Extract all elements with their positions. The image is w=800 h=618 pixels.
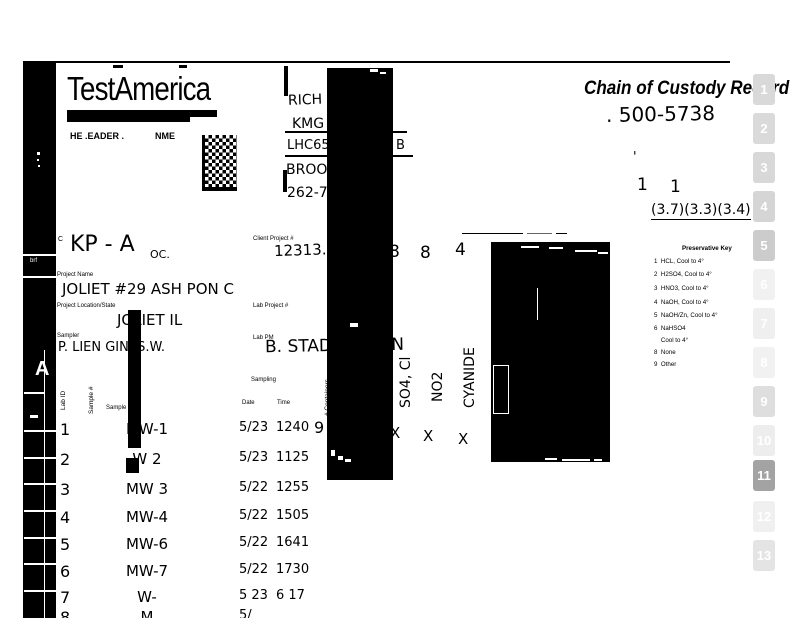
lab-project-label: Lab Project #: [253, 302, 288, 309]
sample-time: 1730: [276, 562, 316, 577]
analysis-column-anions: SO4, Cl: [398, 357, 414, 408]
side-tab-3: 3: [753, 152, 775, 183]
time-column-header: Time: [277, 399, 290, 406]
band-divider: [24, 483, 56, 485]
client-value-2: OC.: [150, 248, 170, 261]
scan-artifact: [594, 459, 602, 461]
scan-artifact: [30, 415, 38, 418]
sample-date: 5/22: [239, 562, 273, 577]
lab-id-column-header: Lab ID: [60, 391, 67, 410]
band-divider: [24, 457, 56, 459]
preservative-key-item: 4 NaOH, Cool to 4°: [654, 299, 709, 306]
row-number: 1: [60, 420, 82, 439]
scan-artifact: [562, 459, 590, 461]
preservative-key-item: 5 NaOH/Zn, Cool to 4°: [654, 312, 718, 319]
sample-time: 1255: [276, 480, 316, 495]
scan-artifact: [545, 458, 557, 460]
side-tab-12: 12: [753, 501, 775, 532]
side-tab-7: 7: [753, 308, 775, 339]
row1-container-count: 9: [314, 418, 324, 437]
client-field-prefix: C: [58, 236, 63, 243]
scan-artifact: [350, 323, 358, 327]
analysis-x-mark: X: [423, 427, 433, 445]
tick-mark: ': [633, 150, 637, 165]
form-rule: [462, 233, 523, 234]
sample-date: 5/22: [239, 480, 273, 495]
scan-artifact: [575, 250, 597, 252]
scan-artifact: [345, 459, 351, 462]
band-divider: [24, 563, 56, 565]
analysis-column-no2: NO2: [430, 372, 446, 402]
sample-description: W 2: [108, 450, 186, 468]
band-stamp-label: brf: [30, 258, 37, 264]
band-divider: [23, 276, 56, 278]
sample-date: 5/23: [239, 420, 273, 435]
preservative-key-item: Cool to 4°: [654, 337, 688, 344]
preservative-key-item: 8 None: [654, 349, 676, 356]
sample-date: 5 23: [239, 588, 273, 603]
preservative-key-item: 3 HNO3, Cool to 4°: [654, 285, 709, 292]
client-value: KP - A: [70, 232, 135, 257]
scan-artifact: [370, 69, 378, 72]
datamatrix-barcode: [202, 135, 237, 191]
scan-artifact: [37, 152, 40, 155]
side-tab-2: 2: [753, 113, 775, 144]
sample-date: 5/22: [239, 535, 273, 550]
row-number: 8: [60, 608, 82, 618]
preservative-key-item: 2 H2SO4, Cool to 4°: [654, 271, 712, 278]
redaction-mark: [126, 458, 139, 473]
scan-artifact: [331, 450, 335, 456]
scan-artifact: [284, 66, 288, 96]
scan-artifact: [521, 246, 539, 248]
cooler-count-left: 1: [637, 175, 648, 195]
coc-number: . 500-5738: [606, 101, 715, 127]
sampling-header: Sampling: [251, 376, 276, 383]
scan-artifact: [380, 72, 386, 74]
scanned-chain-of-custody-document: brf A TestAmerica HE .EADER . NME RICH B…: [0, 0, 800, 618]
redaction-bar: [128, 310, 141, 448]
preservative-key-item: 1 HCL, Cool to 4°: [654, 258, 704, 265]
scan-artifact: [38, 165, 40, 167]
date-column-header: Date: [242, 399, 255, 406]
row-number: 3: [60, 480, 82, 499]
sample-description: MW 3: [108, 480, 186, 498]
project-location-value: JOLIET IL: [117, 311, 182, 329]
scan-artifact: [537, 288, 538, 320]
side-tab-8: 8: [753, 347, 775, 378]
row-number: 6: [60, 562, 82, 581]
sampler-label: Sampler: [57, 332, 79, 339]
sample-description: MW-1: [108, 420, 186, 438]
side-tab-11: 11: [753, 460, 775, 491]
preservative-key-title: Preservative Key: [682, 245, 732, 252]
top-rule: [23, 61, 730, 63]
band-divider: [24, 392, 44, 394]
side-tab-9: 9: [753, 386, 775, 417]
row-number: 5: [60, 535, 82, 554]
scan-artifact: [338, 456, 343, 460]
project-name-value: JOLIET #29 ASH PON C: [62, 280, 234, 298]
sample-description: M: [108, 608, 186, 618]
testamerica-logo: TestAmerica: [67, 70, 210, 108]
sample-description: MW-7: [108, 562, 186, 580]
row-number: 4: [60, 508, 82, 527]
cooler-temperatures: (3.7)(3.3)(3.4): [651, 202, 751, 220]
logo-tagline-2: NME: [155, 131, 175, 141]
sample-date: 5/: [239, 608, 273, 618]
cooler-count-right: 1: [670, 177, 681, 197]
logo-tagline: HE .EADER .: [70, 131, 124, 141]
band-divider: [24, 537, 56, 539]
sample-time: 1641: [276, 535, 316, 550]
redaction-window-outline: [493, 365, 509, 414]
side-tab-5: 5: [753, 230, 775, 261]
sample-number-column-header: Sample #: [88, 387, 95, 414]
row-number: 2: [60, 450, 82, 469]
redaction-block-center: [327, 68, 393, 480]
logo-underline-bar: [67, 117, 190, 122]
client-line-3-suffix: B: [396, 138, 405, 153]
scan-artifact: [37, 159, 39, 161]
preservative-key-item: 6 NaHSO4: [654, 325, 686, 332]
client-line-2: KMG: [292, 116, 324, 132]
sample-description: MW-4: [108, 508, 186, 526]
sample-description: MW-6: [108, 535, 186, 553]
scan-artifact: [179, 65, 187, 68]
side-tab-13: 13: [753, 540, 775, 571]
sample-time: 6 17: [276, 588, 316, 603]
band-divider: [24, 510, 56, 512]
sample-date: 5/23: [239, 450, 273, 465]
project-name-label: Project Name: [57, 271, 93, 278]
band-divider: [23, 254, 56, 256]
logo-underline-bar: [67, 110, 217, 117]
redaction-block-right: [491, 242, 610, 462]
container-count-no2: 8: [420, 243, 431, 263]
project-location-label: Project Location/State: [57, 302, 116, 309]
sample-date: 5/22: [239, 508, 273, 523]
sample-description: W-: [108, 588, 186, 606]
scan-artifact: [598, 252, 608, 254]
side-tab-10: 10: [753, 425, 775, 456]
sampler-value: P. LIEN GIN .S.W.: [58, 340, 165, 355]
band-divider: [24, 590, 56, 592]
container-count-cyanide: 4: [455, 240, 466, 260]
sample-time: 1505: [276, 508, 316, 523]
row-number: 7: [60, 588, 82, 607]
band-divider: [24, 430, 56, 432]
scan-artifact: [549, 247, 563, 249]
form-rule: [556, 233, 567, 234]
analysis-x-mark: X: [458, 430, 468, 448]
band-letter-mark: A: [35, 358, 49, 381]
left-binding-band: brf A: [23, 62, 56, 618]
side-tab-6: 6: [753, 269, 775, 300]
side-tab-4: 4: [753, 191, 775, 222]
analysis-column-cyanide: CYANIDE: [462, 347, 478, 408]
client-line-5: 262-7: [287, 185, 328, 201]
sample-time: 1125: [276, 450, 316, 465]
form-rule-dotted: [527, 233, 552, 234]
side-tab-1: 1: [753, 74, 775, 105]
preservative-key-item: 9 Other: [654, 361, 676, 368]
sample-time: 1240: [276, 420, 316, 435]
scan-artifact: [113, 65, 123, 68]
